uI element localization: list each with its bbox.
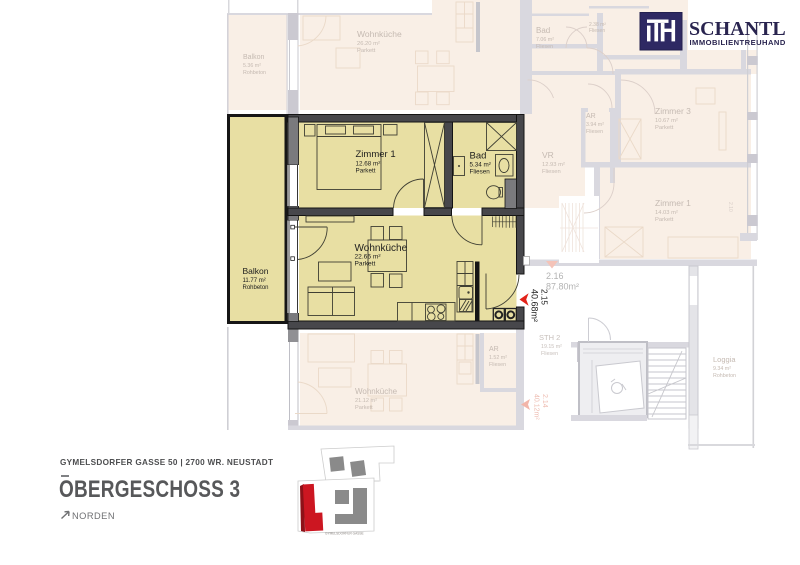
svg-text:Rohbeton: Rohbeton xyxy=(243,70,266,76)
svg-text:2.10: 2.10 xyxy=(727,202,733,212)
svg-text:Fliesen: Fliesen xyxy=(489,362,506,368)
svg-text:Loggia: Loggia xyxy=(713,355,736,364)
svg-text:10.67 m²: 10.67 m² xyxy=(655,118,678,124)
svg-text:Wohnküche: Wohnküche xyxy=(355,243,408,254)
svg-text:2.15: 2.15 xyxy=(540,289,549,305)
svg-text:Fliesen: Fliesen xyxy=(536,44,553,50)
svg-text:1.52 m²: 1.52 m² xyxy=(489,355,507,361)
svg-text:Parkett: Parkett xyxy=(356,168,376,175)
svg-text:Bad: Bad xyxy=(536,26,550,35)
svg-text:2.16: 2.16 xyxy=(546,271,564,281)
svg-text:Fliesen: Fliesen xyxy=(586,129,603,135)
svg-text:3.94 m²: 3.94 m² xyxy=(586,122,604,128)
svg-text:Wohnküche: Wohnküche xyxy=(355,387,398,396)
svg-text:5.34 m²: 5.34 m² xyxy=(470,162,491,169)
svg-text:2.14: 2.14 xyxy=(541,394,548,408)
svg-text:22.66 m²: 22.66 m² xyxy=(355,254,382,261)
svg-text:STH 2: STH 2 xyxy=(539,333,560,342)
svg-text:87.80m²: 87.80m² xyxy=(546,282,579,292)
svg-text:Zimmer 1: Zimmer 1 xyxy=(356,149,396,160)
svg-text:AR: AR xyxy=(586,113,596,120)
svg-text:5.36 m²: 5.36 m² xyxy=(243,63,261,69)
svg-text:Rohbeton: Rohbeton xyxy=(713,373,736,379)
svg-text:Zimmer 1: Zimmer 1 xyxy=(655,198,691,208)
svg-text:Balkon: Balkon xyxy=(243,266,269,276)
svg-text:26.20 m²: 26.20 m² xyxy=(357,41,380,47)
svg-text:Bad: Bad xyxy=(470,151,487,162)
svg-text:Parkett: Parkett xyxy=(355,261,376,268)
svg-text:Fliesen: Fliesen xyxy=(542,169,561,175)
svg-text:7.06 m²: 7.06 m² xyxy=(536,37,554,43)
svg-text:Fliesen: Fliesen xyxy=(470,169,491,176)
svg-text:12.93 m²: 12.93 m² xyxy=(542,162,565,168)
svg-text:GYMELSDORFER GASSE: GYMELSDORFER GASSE xyxy=(325,532,364,536)
svg-text:AR: AR xyxy=(489,346,499,353)
svg-text:Parkett: Parkett xyxy=(655,125,674,131)
svg-text:Balkon: Balkon xyxy=(243,54,265,61)
svg-text:Zimmer 3: Zimmer 3 xyxy=(655,106,691,116)
svg-text:21.12 m²: 21.12 m² xyxy=(355,398,377,404)
svg-text:Parkett: Parkett xyxy=(355,405,373,411)
svg-text:11.77 m²: 11.77 m² xyxy=(243,278,266,284)
svg-text:Wohnküche: Wohnküche xyxy=(357,29,402,39)
svg-text:40.68m²: 40.68m² xyxy=(530,289,540,322)
svg-text:Rohbeton: Rohbeton xyxy=(243,285,269,291)
svg-text:40.12m²: 40.12m² xyxy=(533,394,540,420)
svg-text:Parkett: Parkett xyxy=(655,217,674,223)
svg-text:Parkett: Parkett xyxy=(357,48,376,54)
svg-text:IMMOBILIENTREUHAND: IMMOBILIENTREUHAND xyxy=(690,38,786,47)
svg-text:Fliesen: Fliesen xyxy=(589,28,605,34)
svg-text:Fliesen: Fliesen xyxy=(541,351,558,357)
svg-text:VR: VR xyxy=(542,150,554,160)
svg-text:SCHANTL: SCHANTL xyxy=(689,18,786,40)
svg-text:9.34 m²: 9.34 m² xyxy=(713,366,731,372)
svg-text:19.15 m²: 19.15 m² xyxy=(541,344,562,350)
svg-text:14.03 m²: 14.03 m² xyxy=(655,210,678,216)
svg-text:12.68 m²: 12.68 m² xyxy=(356,161,381,168)
